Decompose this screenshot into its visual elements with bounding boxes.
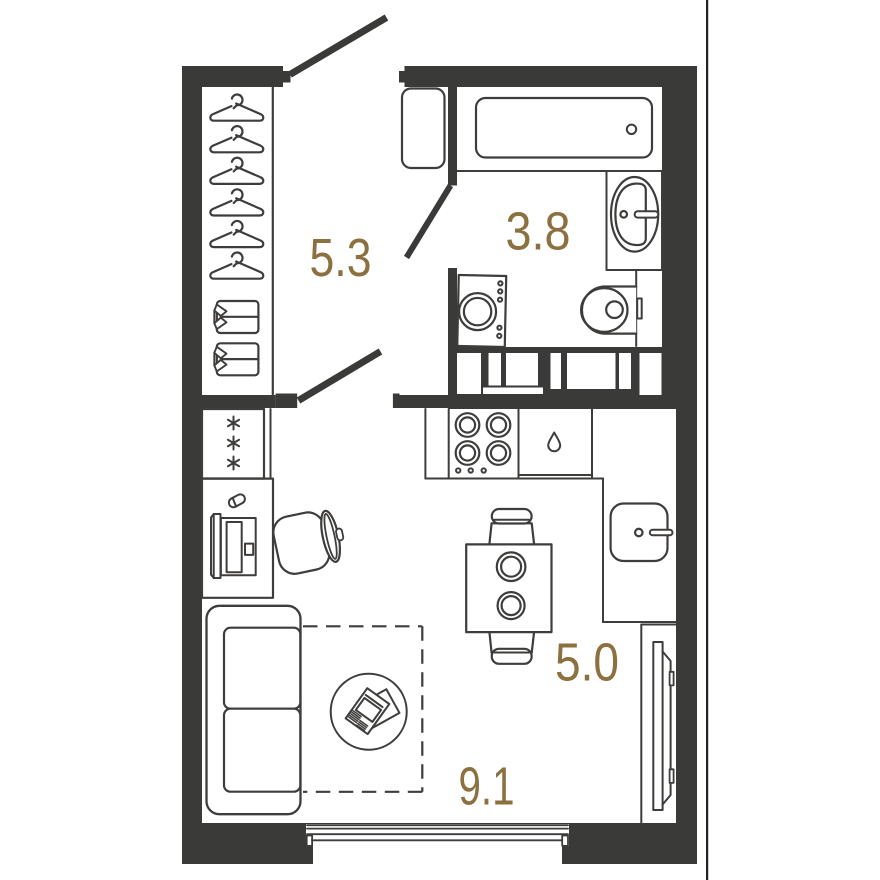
- svg-text:5.3: 5.3: [310, 228, 372, 288]
- svg-text:5.0: 5.0: [555, 632, 619, 692]
- svg-text:9.1: 9.1: [459, 757, 515, 817]
- svg-text:3.8: 3.8: [506, 201, 571, 261]
